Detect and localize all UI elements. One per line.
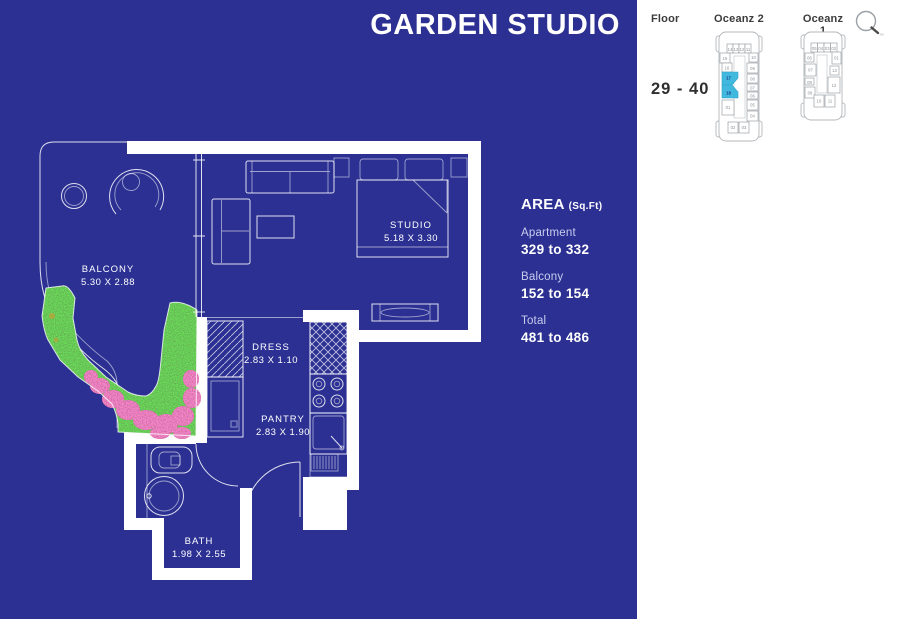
t2-unit-17: 17 <box>726 76 731 81</box>
area-row-apartment: Apartment 329 to 332 <box>521 227 633 257</box>
t2-unit-11: 11 <box>746 47 751 52</box>
balcony-area-label: Balcony <box>521 271 633 283</box>
bath-dims: 1.98 X 2.55 <box>172 549 226 560</box>
t2-unit-04: 04 <box>750 114 755 119</box>
t1-unit-13: 13 <box>832 68 837 73</box>
t2-unit-06: 06 <box>750 93 755 98</box>
t1-unit-05: 05 <box>812 46 817 51</box>
t2-unit-10: 10 <box>751 55 756 60</box>
balcony-plants <box>42 286 201 439</box>
toilet <box>151 447 192 473</box>
coffee-table <box>257 216 294 238</box>
balcony-dims: 5.30 X 2.88 <box>81 277 135 288</box>
area-heading: AREA (Sq.Ft) <box>521 196 633 213</box>
t1-unit-11: 11 <box>828 99 833 104</box>
t1-unit-02: 02 <box>831 46 836 51</box>
upper-cabinet <box>310 322 347 374</box>
t1-unit-03: 03 <box>825 46 830 51</box>
t1-unit-08: 08 <box>807 80 812 85</box>
t1-unit-06: 06 <box>807 56 812 61</box>
sink <box>310 413 347 454</box>
trademark-symbol: ™ <box>879 33 884 39</box>
t2-unit-01: 01 <box>726 105 731 110</box>
t2-unit-03: 03 <box>742 125 747 130</box>
balcony-label: BALCONY <box>82 264 134 275</box>
hanging-chair <box>110 170 164 214</box>
wardrobe <box>207 321 243 437</box>
t1-unit-07: 07 <box>808 68 813 73</box>
t2-unit-07: 07 <box>750 85 755 90</box>
dress-label: DRESS <box>252 342 290 353</box>
area-unit: (Sq.Ft) <box>569 201 603 212</box>
area-heading-text: AREA <box>521 196 564 213</box>
t2-unit-09: 09 <box>750 66 755 71</box>
sofa-two-seat <box>246 161 334 193</box>
floor-header: Floor <box>651 13 680 25</box>
area-row-balcony: Balcony 152 to 154 <box>521 271 633 301</box>
bath-door <box>196 444 238 486</box>
t2-unit-14: 14 <box>728 47 733 52</box>
apartment-label: Apartment <box>521 227 633 239</box>
t2-unit-15: 15 <box>723 56 728 61</box>
nightstand-right <box>451 158 467 177</box>
t2-unit-08: 08 <box>750 76 755 81</box>
floorplan-panel: GARDEN STUDIO <box>0 0 637 619</box>
t1-unit-12: 12 <box>832 83 837 88</box>
q-brand-logo: ™ <box>852 8 886 40</box>
total-value: 481 to 486 <box>521 330 633 345</box>
tv-console <box>372 304 438 321</box>
studio-label: STUDIO <box>390 220 432 231</box>
t1-unit-01: 01 <box>834 56 839 61</box>
balcony-table <box>62 184 87 209</box>
area-summary: AREA (Sq.Ft) Apartment 329 to 332 Balcon… <box>521 196 633 345</box>
t1-unit-10: 10 <box>817 99 822 104</box>
dish-rack <box>311 454 338 471</box>
q-logo-tail <box>872 28 879 34</box>
balcony-area-value: 152 to 154 <box>521 286 633 301</box>
t2-unit-16: 16 <box>725 66 730 71</box>
pantry-dims: 2.83 X 1.90 <box>256 427 310 438</box>
tower2-floorplate: 14 13 12 11 15 10 16 17 18 01 09 08 07 0… <box>714 30 764 143</box>
t2-unit-13: 13 <box>734 47 739 52</box>
washbasin <box>145 477 184 516</box>
floor-range: 29 - 40 <box>651 80 709 99</box>
apartment-value: 329 to 332 <box>521 242 633 257</box>
t1-unit-09: 09 <box>808 91 813 96</box>
t2-unit-02: 02 <box>731 125 736 130</box>
studio-dims: 5.18 X 3.30 <box>384 233 438 244</box>
sliding-door <box>193 154 205 317</box>
sofa-single <box>212 199 250 264</box>
t1-unit-04: 04 <box>818 46 823 51</box>
tower2-header: Oceanz 2 <box>714 13 764 25</box>
total-label: Total <box>521 315 633 327</box>
pantry-label: PANTRY <box>261 414 305 425</box>
dress-dims: 2.83 X 1.10 <box>244 355 298 366</box>
stove <box>310 374 347 413</box>
brochure-page: GARDEN STUDIO <box>0 0 906 619</box>
t2-unit-05: 05 <box>750 103 755 108</box>
entry-door <box>245 462 300 517</box>
t2-unit-18: 18 <box>726 91 731 96</box>
kitchen <box>310 322 347 477</box>
t2-unit-12: 12 <box>740 47 745 52</box>
bath-label: BATH <box>185 536 214 547</box>
bathroom <box>145 444 193 518</box>
tower1-floorplate: 05 04 03 02 06 01 07 13 08 12 09 10 11 <box>800 30 846 122</box>
area-row-total: Total 481 to 486 <box>521 315 633 345</box>
nightstand-left <box>334 158 349 177</box>
